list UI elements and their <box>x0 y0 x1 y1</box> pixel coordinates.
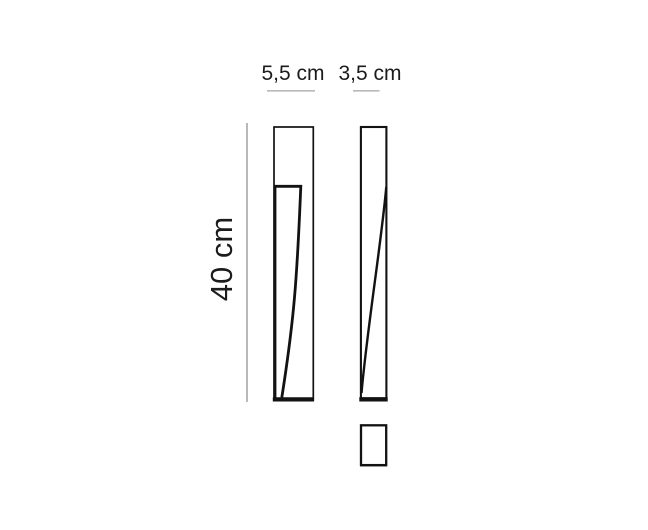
side-view <box>359 127 387 400</box>
side-view-twist-edge <box>362 187 387 393</box>
front-view-outline <box>274 127 313 401</box>
front-view <box>273 127 314 401</box>
detail-box-outline <box>361 425 386 465</box>
front-view-inner-panel-twist-edge <box>275 186 301 397</box>
product-dimension-diagram: 5,5 cm 3,5 cm 40 cm <box>0 0 648 530</box>
diagram-drawing <box>0 0 648 530</box>
detail-box <box>360 425 387 465</box>
